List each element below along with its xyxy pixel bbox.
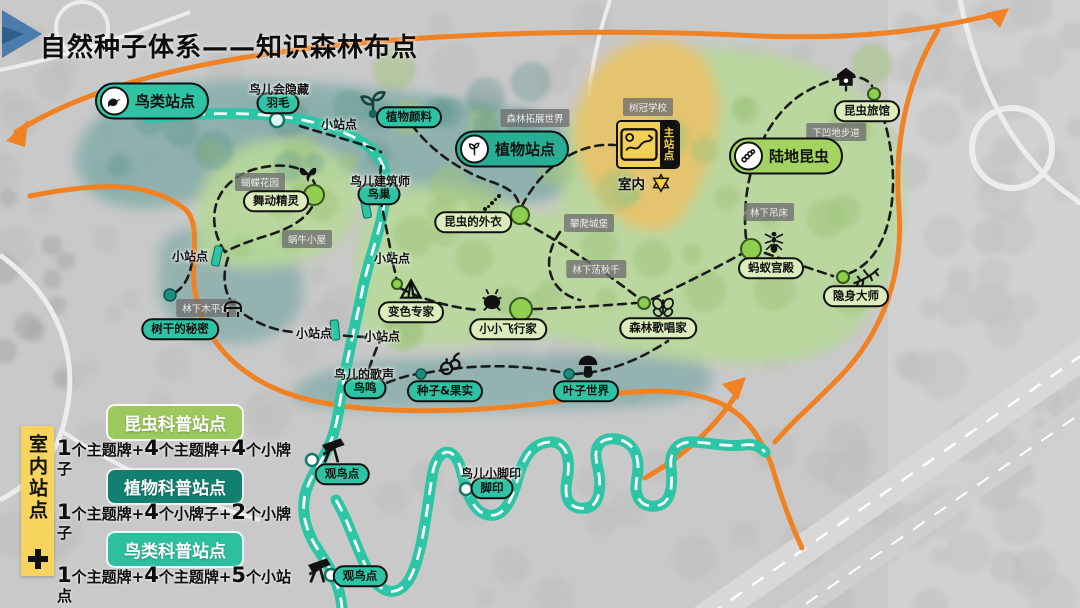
bird-station-label: 鸟类站点: [135, 91, 195, 112]
ant-palace-pill: 蚂蚁宫殿: [738, 257, 804, 279]
seed-fruit-pill: 种子&果实: [407, 380, 483, 402]
legend-desc-bird: 1个主题牌+4个主题牌+5个小站点: [57, 564, 295, 604]
little-aviator-pill: 小小飞行家: [469, 318, 547, 340]
legend-item-insect: 昆虫科普站点: [106, 404, 244, 441]
main-station-map-icon: [618, 122, 660, 167]
main-station-label: 主站点: [660, 122, 678, 167]
forest-singer-pill: 森林歌唱家: [619, 317, 697, 339]
insect-hotel-pill: 昆虫旅馆: [834, 100, 900, 122]
insect-station-label: 陆地昆虫: [769, 146, 829, 167]
small-station-label-4: 小站点: [296, 325, 332, 342]
plus-icon: [28, 549, 48, 569]
indoor-stations-bar: 室内站点: [21, 426, 54, 576]
knowledge-forest-map-slide: 森林拓展世界树冠学校蝴蝶花园蜗牛小屋林下木平台攀爬城堡林下荡秋千林下吊床下凹地步…: [0, 0, 1080, 608]
small-station-label-5: 小站点: [364, 328, 400, 345]
legend-item-plant: 植物科普站点: [106, 468, 244, 505]
area-label-forest-world: 森林拓展世界: [500, 109, 569, 127]
page-title: 自然种子体系——知识森林布点: [40, 27, 418, 64]
hidden-bird-label: 鸟儿会隐藏: [249, 81, 309, 98]
trunk-secret-pill: 树干的秘密: [141, 318, 219, 340]
area-label-snail-house: 蜗牛小屋: [282, 230, 332, 248]
plant-station-label: 植物站点: [495, 139, 555, 160]
color-expert-pill: 变色专家: [378, 301, 444, 323]
small-station-label-2: 小站点: [172, 248, 208, 265]
insect-coat-pill: 昆虫的外衣: [434, 211, 512, 233]
mushroom-icon: [574, 351, 602, 383]
birdhouse-icon: [833, 66, 860, 97]
leaf-world-pill: 叶子世界: [553, 380, 619, 402]
bird-station: 鸟类站点: [95, 83, 209, 120]
berries-icon: [437, 352, 464, 383]
birdwatch-point-pill-2: 观鸟点: [333, 565, 388, 587]
dancing-sprite-pill: 舞动精灵: [243, 190, 309, 212]
caterpillar-icon: [734, 142, 763, 171]
small-station-label-3: 小站点: [374, 250, 410, 267]
stealth-master-pill: 隐身大师: [823, 285, 889, 307]
ant-icon: [761, 229, 788, 260]
area-label-climb-castle: 攀爬城堡: [564, 214, 614, 232]
insect-station: 陆地昆虫: [729, 138, 843, 175]
beetle-icon: [478, 287, 506, 319]
butterfly-icon: [296, 162, 320, 190]
birdwatch-point-pill-1: 观鸟点: [315, 463, 370, 485]
logo-triangle-icon: [0, 6, 44, 62]
plant-station: 植物站点: [455, 131, 569, 168]
main-station-badge: 主站点 室内: [616, 120, 680, 169]
indoor-label: 室内: [618, 173, 645, 193]
small-station-label-1: 小站点: [321, 116, 357, 133]
legend-item-bird: 鸟类科普站点: [106, 531, 244, 568]
bird-icon: [100, 87, 129, 116]
telescope-icon: [304, 553, 336, 589]
sprout-icon: [460, 135, 489, 164]
indoor-stations-label: 室内站点: [24, 434, 51, 522]
bench-icon: [221, 296, 245, 324]
bird-song-label: 鸟儿的歌声: [334, 366, 394, 383]
plant-pigment-pill: 植物颜料: [376, 106, 442, 128]
area-label-canopy-school: 树冠学校: [623, 98, 673, 116]
bird-footprint-label: 鸟儿小脚印: [461, 465, 521, 482]
area-label-swing: 林下荡秋千: [566, 260, 626, 278]
area-label-hammock: 林下吊床: [744, 203, 794, 221]
area-label-butterfly: 蝴蝶花园: [235, 173, 285, 191]
bird-architect-label: 鸟儿建筑师: [350, 173, 410, 190]
star-icon: [650, 172, 672, 194]
